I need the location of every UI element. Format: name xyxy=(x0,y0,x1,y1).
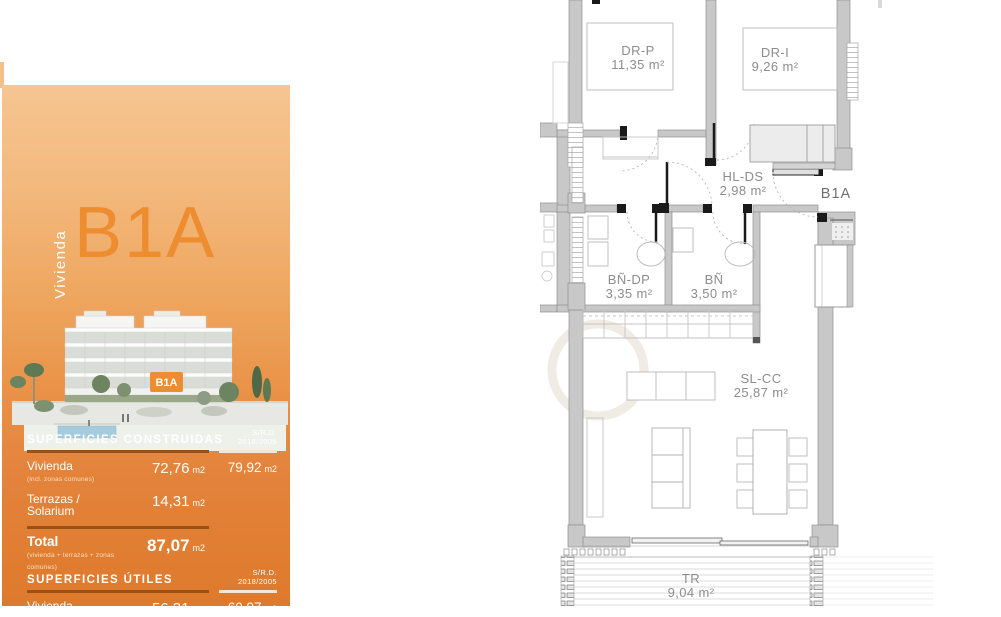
usable-areas-table: SUPERFICIES ÚTILES S/R.D.2018/2005 Vivie… xyxy=(27,569,277,617)
furniture xyxy=(542,23,837,517)
table-row: Terrazas / Solarium 14,31m2 xyxy=(27,493,277,517)
dining-set xyxy=(737,430,807,514)
terrace-pilaster xyxy=(561,556,574,606)
kitchen-island xyxy=(627,372,715,400)
stair-core xyxy=(815,245,850,307)
room-label-tr: TR9,04 m² xyxy=(646,572,736,600)
room-label-bndp: BÑ-DP3,35 m² xyxy=(584,273,674,301)
room-label-drp: DR-P11,35 m² xyxy=(593,44,683,72)
unit-title: B1A xyxy=(74,197,216,269)
balustrade xyxy=(564,549,835,555)
toilet xyxy=(637,242,665,266)
terrace-decking xyxy=(574,556,933,606)
sofa xyxy=(652,428,690,508)
sideboard xyxy=(587,418,603,517)
floor-plan-drawing xyxy=(540,0,1001,606)
palm-tree xyxy=(24,363,44,377)
building-badge: B1A xyxy=(150,372,183,392)
sliding-door xyxy=(632,538,722,543)
unit-tag: B1A xyxy=(810,186,862,202)
tree xyxy=(92,375,110,393)
toilet xyxy=(725,242,755,266)
built-areas-table: SUPERFICIES CONSTRUIDAS S/R.D.2018/2005 … xyxy=(27,429,277,574)
wardrobe xyxy=(750,125,835,169)
closet xyxy=(603,137,658,159)
room-label-bn: BÑ3,50 m² xyxy=(669,273,759,301)
sliding-door xyxy=(720,541,808,545)
sidebar-panel: Vivienda B1A xyxy=(2,85,290,606)
building-facade xyxy=(65,311,232,395)
unit-kicker: Vivienda xyxy=(52,209,69,299)
header-rule xyxy=(27,450,209,453)
terrace-pilaster xyxy=(810,556,823,606)
cypress-tree xyxy=(252,366,262,398)
total-divider xyxy=(27,526,209,529)
window xyxy=(847,43,858,100)
std-header-rule xyxy=(219,450,277,453)
header-rule xyxy=(27,590,209,593)
table-header: SUPERFICIES ÚTILES xyxy=(27,574,173,586)
building-badge-label: B1A xyxy=(155,377,177,389)
total-row: Total (vivienda + terrazas + zonas comun… xyxy=(27,536,277,574)
room-label-hlds: HL-DS2,98 m² xyxy=(698,170,788,198)
room-label-dri: DR-I9,26 m² xyxy=(730,46,820,74)
std-reference-header: S/R.D.2018/2005 xyxy=(238,569,277,586)
room-label-slcc: SL-CC25,87 m² xyxy=(716,372,806,400)
std-reference-header: S/R.D.2018/2005 xyxy=(238,429,277,446)
table-header: SUPERFICIES CONSTRUIDAS xyxy=(27,434,223,446)
std-header-rule xyxy=(219,590,277,593)
table-row: Vivienda 56,31m2 60,97m2 xyxy=(27,600,277,617)
table-row: Vivienda (incl. zonas comunes) 72,76m2 7… xyxy=(27,460,277,486)
floor-plan xyxy=(540,0,1001,606)
